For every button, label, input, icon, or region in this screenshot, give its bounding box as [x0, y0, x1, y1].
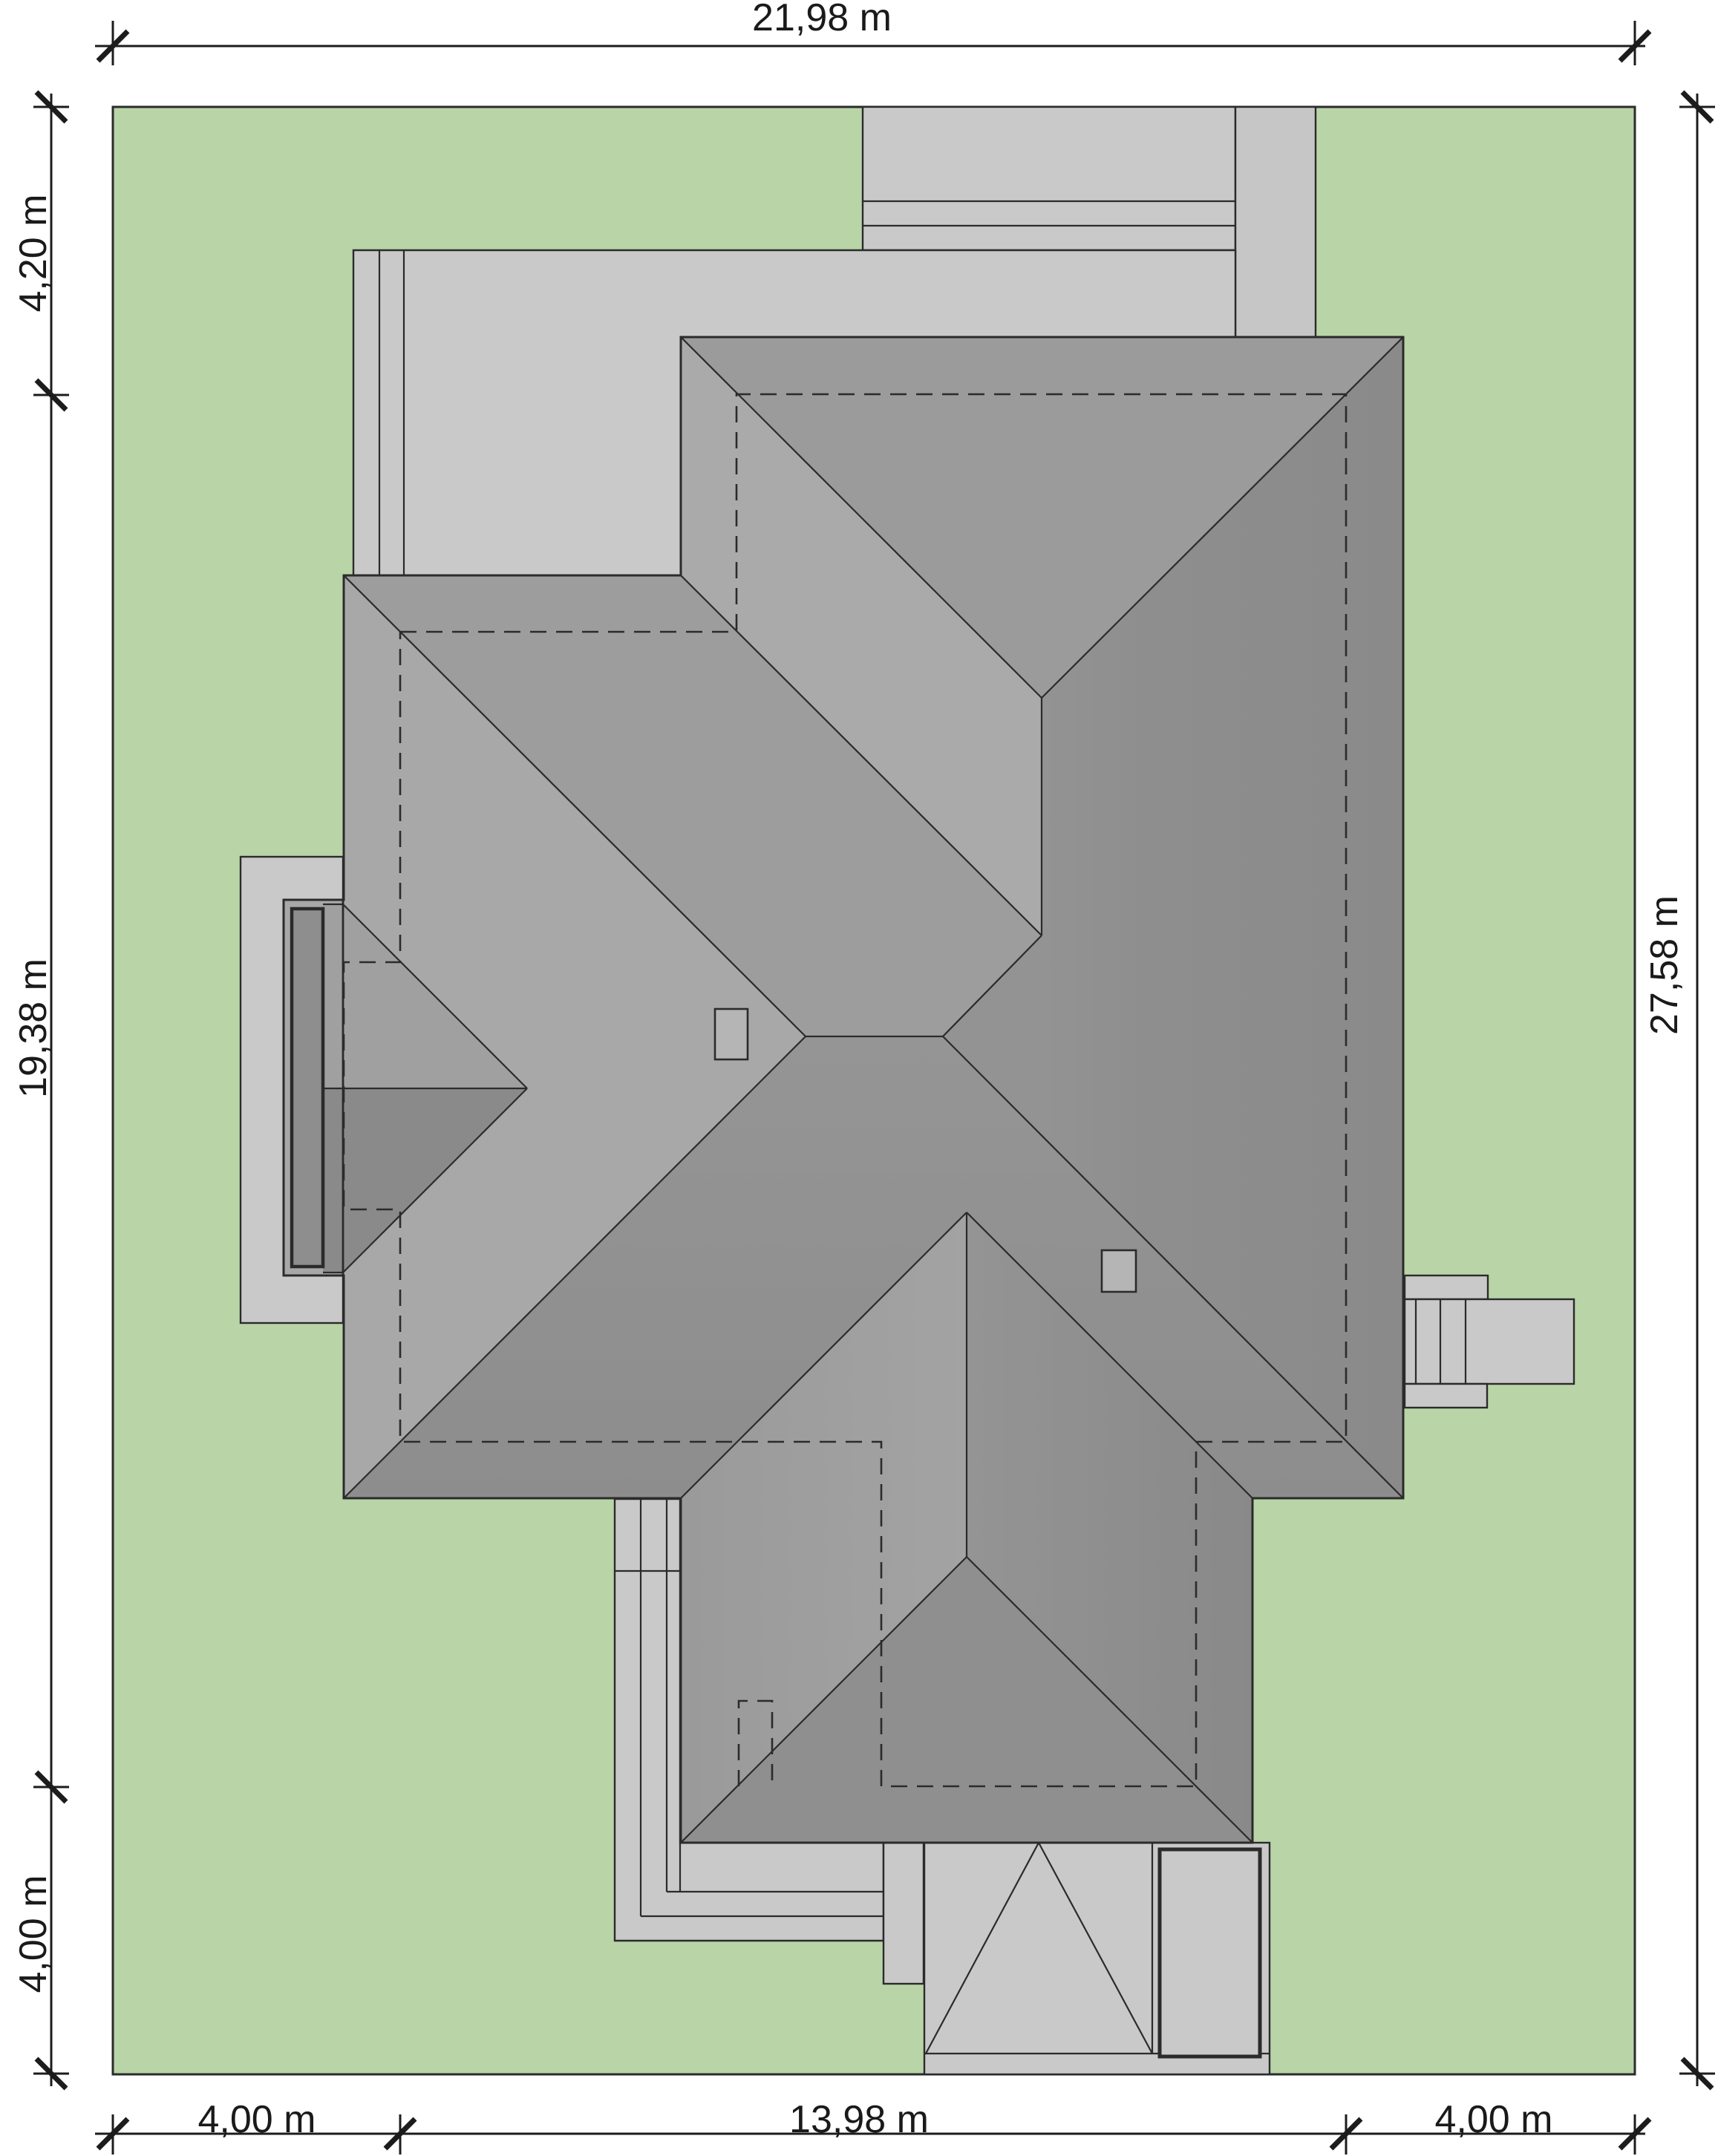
svg-text:4,20 m: 4,20 m — [12, 195, 55, 313]
svg-text:13,98 m: 13,98 m — [789, 2098, 929, 2141]
svg-text:19,38 m: 19,38 m — [12, 958, 55, 1098]
svg-text:27,58 m: 27,58 m — [1643, 895, 1686, 1035]
svg-text:4,00 m: 4,00 m — [198, 2098, 316, 2141]
svg-text:4,00 m: 4,00 m — [12, 1875, 55, 1993]
svg-text:21,98 m: 21,98 m — [752, 0, 892, 39]
svg-text:4,00 m: 4,00 m — [1435, 2098, 1553, 2141]
